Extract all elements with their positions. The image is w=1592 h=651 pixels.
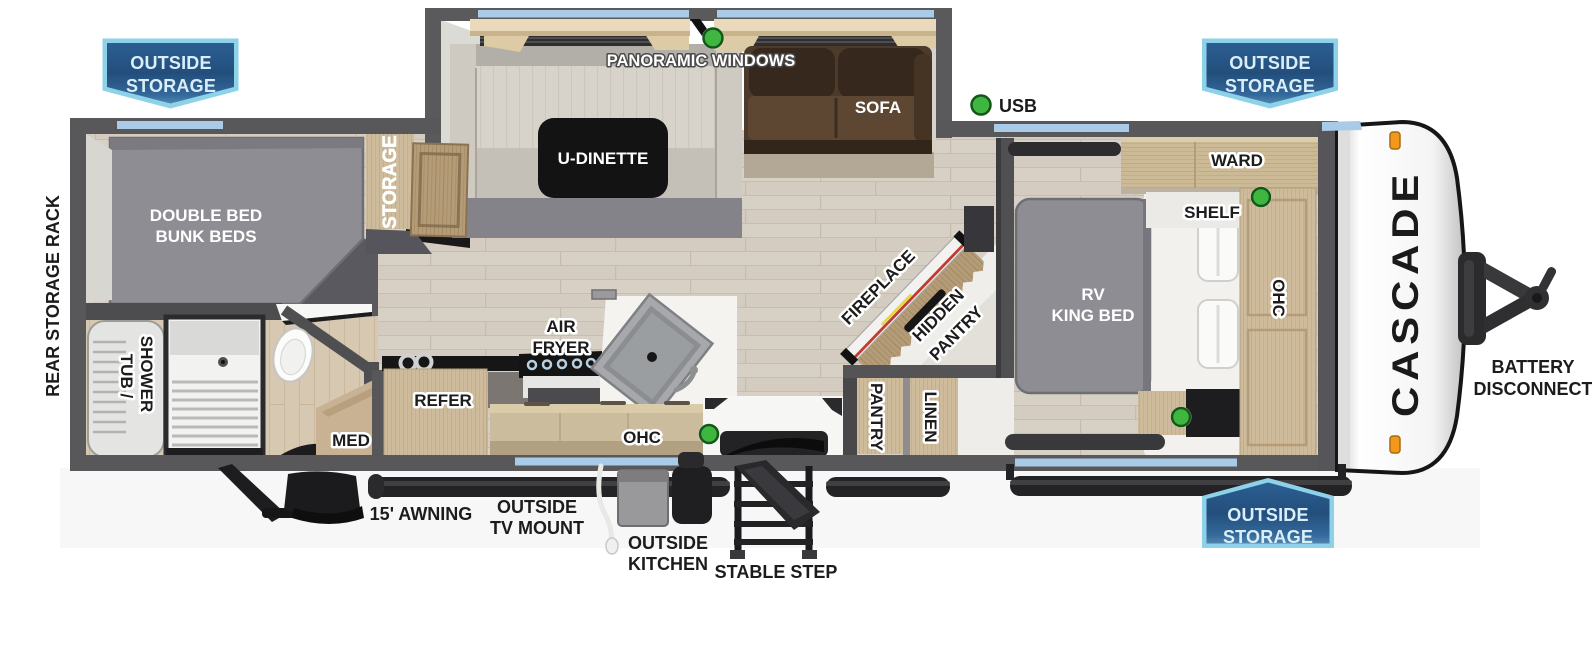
- svg-text:OHC: OHC: [623, 428, 661, 447]
- svg-text:TUB /: TUB /: [117, 354, 136, 399]
- svg-text:LINEN: LINEN: [921, 392, 940, 443]
- svg-text:PANTRY: PANTRY: [867, 383, 886, 452]
- svg-text:BUNK BEDS: BUNK BEDS: [155, 227, 256, 246]
- svg-text:STORAGE: STORAGE: [126, 76, 216, 96]
- svg-text:U-DINETTE: U-DINETTE: [558, 149, 649, 168]
- svg-text:SOFA: SOFA: [855, 98, 901, 117]
- svg-text:STORAGE: STORAGE: [1223, 527, 1313, 547]
- svg-text:TV MOUNT: TV MOUNT: [490, 518, 584, 538]
- svg-text:OUTSIDE: OUTSIDE: [130, 53, 211, 73]
- svg-text:OUTSIDE: OUTSIDE: [628, 533, 708, 553]
- svg-text:PANORAMIC WINDOWS: PANORAMIC WINDOWS: [607, 52, 796, 70]
- svg-text:DOUBLE BED: DOUBLE BED: [150, 206, 262, 225]
- svg-text:DISCONNECT: DISCONNECT: [1473, 379, 1592, 399]
- svg-text:15' AWNING: 15' AWNING: [370, 504, 473, 524]
- svg-text:REAR STORAGE RACK: REAR STORAGE RACK: [43, 195, 63, 397]
- svg-text:KING BED: KING BED: [1051, 306, 1134, 325]
- svg-text:OUTSIDE: OUTSIDE: [1229, 53, 1310, 73]
- svg-text:AIR: AIR: [546, 317, 575, 336]
- svg-text:CASCADE: CASCADE: [1385, 169, 1426, 417]
- svg-text:SHELF: SHELF: [1184, 203, 1240, 222]
- svg-text:OHC: OHC: [1269, 279, 1288, 317]
- svg-text:STABLE STEP: STABLE STEP: [715, 562, 838, 582]
- svg-text:REFER: REFER: [414, 391, 472, 410]
- svg-text:STORAGE: STORAGE: [1225, 76, 1315, 96]
- svg-text:SHOWER: SHOWER: [137, 336, 156, 413]
- svg-text:STORAGE: STORAGE: [380, 135, 401, 229]
- svg-text:RV: RV: [1081, 285, 1105, 304]
- svg-text:OUTSIDE: OUTSIDE: [1227, 505, 1308, 525]
- svg-text:KITCHEN: KITCHEN: [628, 554, 708, 574]
- svg-text:WARD: WARD: [1211, 151, 1263, 170]
- svg-text:BATTERY: BATTERY: [1492, 357, 1575, 377]
- svg-text:OUTSIDE: OUTSIDE: [497, 497, 577, 517]
- svg-text:USB: USB: [999, 96, 1037, 116]
- svg-text:FRYER: FRYER: [533, 338, 590, 357]
- svg-text:MED: MED: [332, 431, 370, 450]
